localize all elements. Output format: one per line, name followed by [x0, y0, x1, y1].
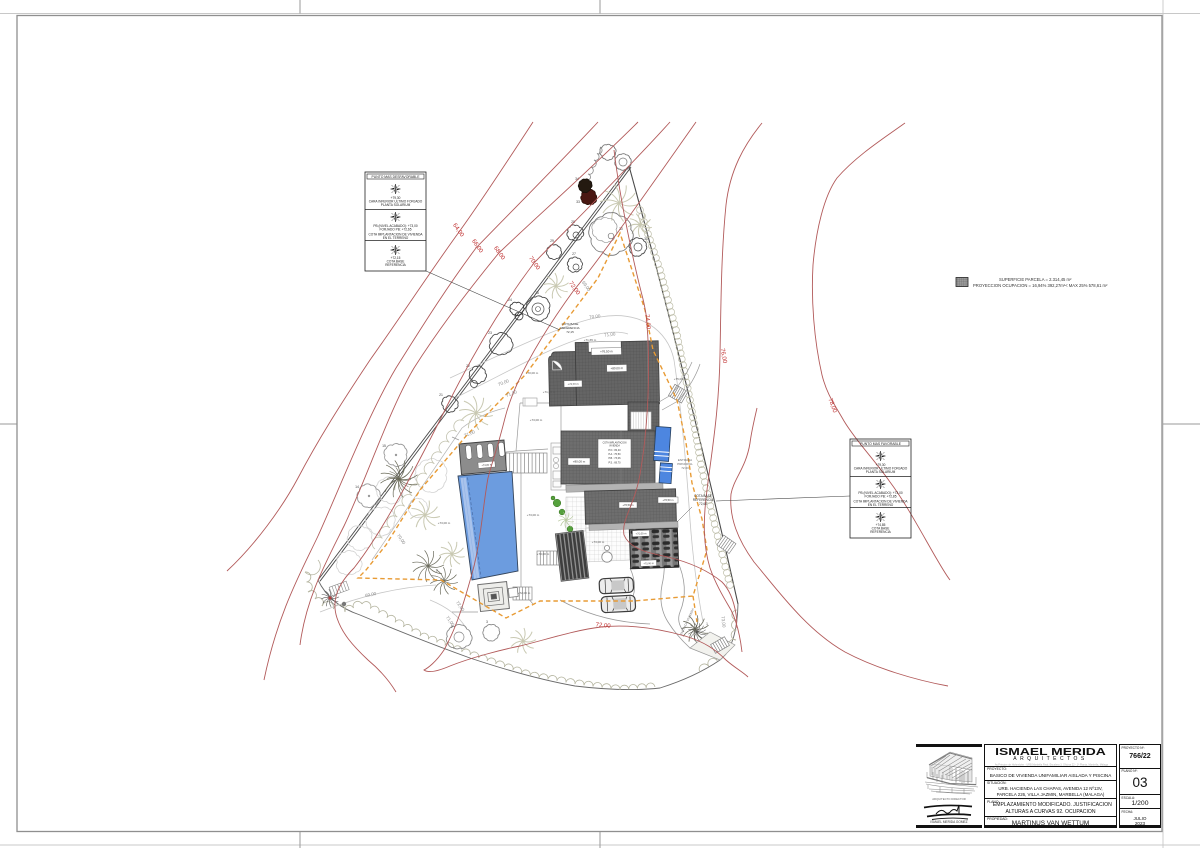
svg-text:+76,50 m: +76,50 m [568, 382, 579, 386]
svg-text:EN EL TERRENO: EN EL TERRENO [868, 503, 894, 507]
svg-text:+73,00 m: +73,00 m [438, 521, 451, 525]
svg-text:+71,65 m: +71,65 m [584, 338, 597, 342]
svg-text:REFERENCIA: REFERENCIA [385, 263, 406, 267]
svg-text:+75,00 m: +75,00 m [635, 531, 646, 535]
svg-text:+73,00 m: +73,00 m [592, 540, 605, 544]
svg-text:72,65: 72,65 [699, 502, 707, 506]
svg-text:1: 1 [706, 622, 708, 626]
svg-text:15: 15 [382, 444, 386, 448]
svg-text:+73,00 m: +73,00 m [527, 513, 540, 517]
svg-text:FORJADO PB: +72,65: FORJADO PB: +72,65 [380, 228, 412, 232]
svg-text:+80,00 m: +80,00 m [573, 460, 586, 464]
svg-text:+76,50 m: +76,50 m [663, 498, 674, 502]
svg-text:29: 29 [550, 239, 554, 243]
svg-text:PROYECCION OCUPACION = 16,94%: PROYECCION OCUPACION = 16,94% 392,27m²< … [973, 283, 1108, 288]
svg-text:P.S.: 69,70: P.S.: 69,70 [608, 461, 621, 464]
svg-text:3: 3 [486, 620, 488, 624]
svg-text:PUNTO MAS DESFAVORABLE: PUNTO MAS DESFAVORABLE [372, 175, 421, 179]
svg-text:+72,00 m: +72,00 m [518, 591, 531, 595]
svg-text:PLANTA SOLARIUM: PLANTA SOLARIUM [866, 470, 896, 474]
svg-text:7: 7 [436, 569, 438, 573]
svg-text:14: 14 [355, 485, 359, 489]
svg-text:23: 23 [488, 331, 492, 335]
svg-text:+73,00 m: +73,00 m [537, 552, 550, 556]
svg-text:+80,00 m: +80,00 m [610, 366, 623, 370]
svg-text:26: 26 [535, 291, 539, 295]
svg-text:27: 27 [572, 252, 576, 256]
svg-text:72,15: 72,15 [566, 330, 574, 334]
svg-text:+75,00 m: +75,00 m [674, 377, 687, 381]
svg-text:ISMAEL MERIDA GOMEZ: ISMAEL MERIDA GOMEZ [930, 820, 967, 824]
svg-text:33: 33 [576, 200, 580, 204]
svg-text:P.O.: 80,40: P.O.: 80,40 [608, 449, 621, 452]
svg-text:SUPERFICIE PARCELA = 2.314,45: SUPERFICIE PARCELA = 2.314,45 m² [999, 277, 1072, 282]
svg-text:72,00: 72,00 [681, 466, 689, 470]
svg-text:EN EL TERRENO: EN EL TERRENO [383, 236, 409, 240]
svg-text:+73,00 m: +73,00 m [530, 418, 543, 422]
svg-text:+70,00 m: +70,00 m [526, 371, 539, 375]
svg-text:ARQUITECTO DIRECTOR: ARQUITECTO DIRECTOR [932, 797, 966, 801]
svg-text:+71,65 m: +71,65 m [543, 390, 556, 394]
svg-text:31: 31 [644, 237, 648, 241]
svg-text:21: 21 [439, 393, 443, 397]
svg-text:P.B.: 73,06: P.B.: 73,06 [608, 457, 621, 460]
svg-text:+76,50 m: +76,50 m [600, 349, 613, 353]
svg-text:VIVIENDA: VIVIENDA [609, 445, 620, 448]
svg-text:+73,00 m: +73,00 m [643, 562, 654, 565]
svg-text:COTA IMPLANTACION: COTA IMPLANTACION [603, 441, 627, 444]
svg-text:PLANTA SOLARIUM: PLANTA SOLARIUM [381, 203, 411, 207]
svg-text:PUNTO MAS FAVORABLE: PUNTO MAS FAVORABLE [860, 442, 902, 446]
svg-text:P.A.: 76,50: P.A.: 76,50 [608, 453, 621, 456]
svg-text:FORJADO PB: +72,85: FORJADO PB: +72,85 [865, 495, 897, 499]
svg-text:REFERENCIA: REFERENCIA [870, 530, 891, 534]
